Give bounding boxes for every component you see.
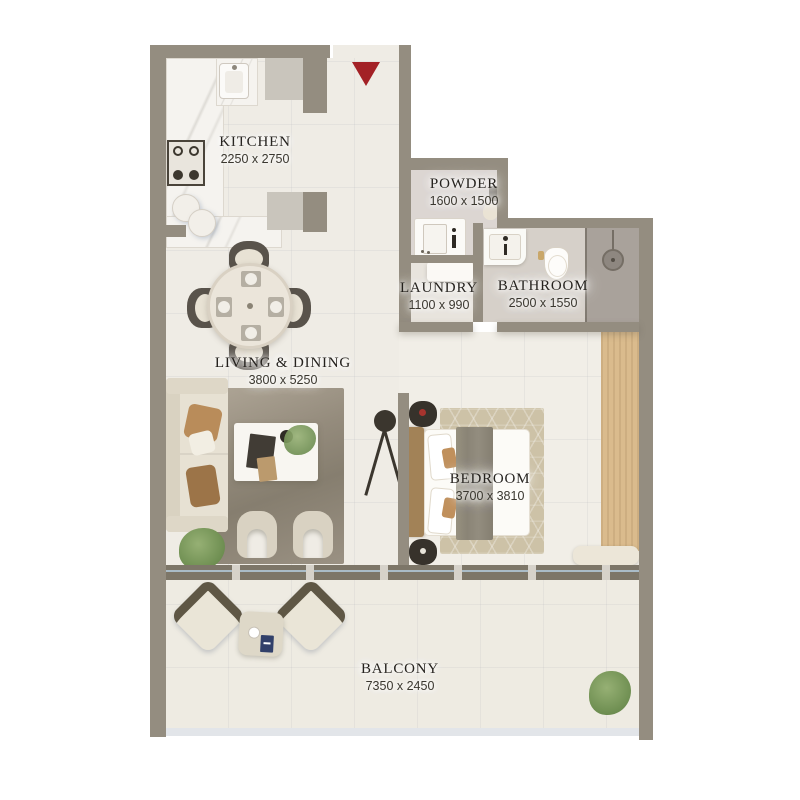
wall-bathroom-top [497, 218, 653, 228]
sofa-back [166, 378, 180, 532]
balcony-floor [166, 580, 639, 730]
book [257, 456, 278, 482]
wall-left [150, 45, 166, 737]
bathroom-dims: 2500 x 1550 [498, 296, 589, 310]
plate [245, 327, 257, 339]
wall-powder-top [399, 158, 508, 170]
wall-kitchen-pillar [303, 45, 327, 113]
burner [173, 146, 183, 156]
bathroom-label: BATHROOM 2500 x 1550 [498, 278, 589, 310]
balcony-name: BALCONY [361, 661, 439, 678]
nightstand [409, 539, 437, 565]
kitchen-dims: 2250 x 2750 [219, 152, 290, 166]
coffee-table [234, 423, 318, 481]
bedroom-name: BEDROOM [450, 471, 531, 488]
plate [218, 301, 230, 313]
armchair-seat-notch [247, 529, 267, 558]
wall-block-bottom-west [399, 322, 473, 332]
armchair [293, 511, 333, 558]
wall-right [639, 218, 653, 740]
kitchen-stove [167, 140, 205, 186]
bathroom-name: BATHROOM [498, 278, 589, 295]
sink-faucet [232, 65, 237, 70]
shower-drain-dot [611, 258, 615, 262]
living-dining-label: LIVING & DINING 3800 x 5250 [215, 355, 351, 387]
balcony-table [238, 611, 284, 657]
dining-table [207, 263, 293, 349]
sofa [166, 378, 228, 532]
book-stripe [263, 642, 270, 644]
sofa-pillow [185, 464, 221, 508]
kitchen-label: KITCHEN 2250 x 2750 [219, 134, 290, 166]
nightstand-decor [420, 548, 426, 554]
sliding-door-wall [166, 565, 639, 580]
table-centerpiece [247, 303, 253, 309]
table-plant [284, 425, 316, 455]
bathroom-vanity [484, 229, 526, 265]
balcony-edge [166, 728, 639, 736]
washing-machine [414, 218, 466, 258]
bedroom-dims: 3700 x 3810 [450, 489, 531, 503]
entrance-arrow-icon [352, 62, 380, 86]
sink-basin [225, 71, 243, 93]
toilet-seat [548, 255, 567, 277]
laundry-label: LAUNDRY 1100 x 990 [400, 280, 478, 312]
kitchen-name: KITCHEN [219, 134, 290, 151]
laundry-name: LAUNDRY [400, 280, 478, 297]
wall-powder-laundry [399, 255, 473, 263]
washer-button [421, 250, 424, 253]
coffee-cup [248, 626, 261, 639]
laundry-counter [427, 262, 473, 281]
laundry-dims: 1100 x 990 [400, 298, 478, 312]
kitchen-stool [188, 209, 216, 237]
plate [270, 301, 282, 313]
powder-label: POWDER 1600 x 1500 [430, 176, 499, 208]
plate [245, 273, 257, 285]
washer-knob-bar [452, 235, 456, 248]
wall-kitchen-stub [166, 225, 186, 237]
washer-button [427, 251, 430, 254]
wall-bedroom-west [398, 393, 409, 565]
living-dining-dims: 3800 x 5250 [215, 373, 351, 387]
kitchen-cabinet-block [267, 192, 303, 230]
kitchen-sink [219, 63, 249, 99]
nightstand-decor [419, 409, 426, 416]
washer-knob-dot [452, 228, 456, 232]
vanity-faucet-dot [503, 236, 508, 241]
burner [189, 170, 199, 180]
shower-pipe [612, 230, 614, 250]
wall-kitchen-pillar [303, 192, 327, 232]
balcony-label: BALCONY 7350 x 2450 [361, 661, 439, 693]
wardrobe [601, 332, 639, 551]
entry-floor [333, 45, 399, 59]
bathroom-toilet [544, 247, 569, 280]
armchair [237, 511, 277, 558]
kitchen-cabinet-block [265, 58, 303, 100]
nightstand [409, 401, 437, 427]
window-bench [573, 546, 639, 565]
armchair-seat-notch [303, 529, 323, 558]
living-dining-name: LIVING & DINING [215, 355, 351, 372]
bedroom-label: BEDROOM 3700 x 3810 [450, 471, 531, 503]
burner [173, 170, 183, 180]
floor-plan: KITCHEN 2250 x 2750 POWDER 1600 x 1500 L… [0, 0, 800, 800]
powder-dims: 1600 x 1500 [430, 194, 499, 208]
burner [189, 146, 199, 156]
vanity-faucet-bar [504, 244, 507, 255]
balcony-book [260, 635, 274, 653]
washer-door [423, 224, 447, 254]
shower-head [602, 249, 624, 271]
powder-name: POWDER [430, 176, 499, 193]
balcony-dims: 7350 x 2450 [361, 679, 439, 693]
wall-block-bottom-east [497, 322, 639, 332]
